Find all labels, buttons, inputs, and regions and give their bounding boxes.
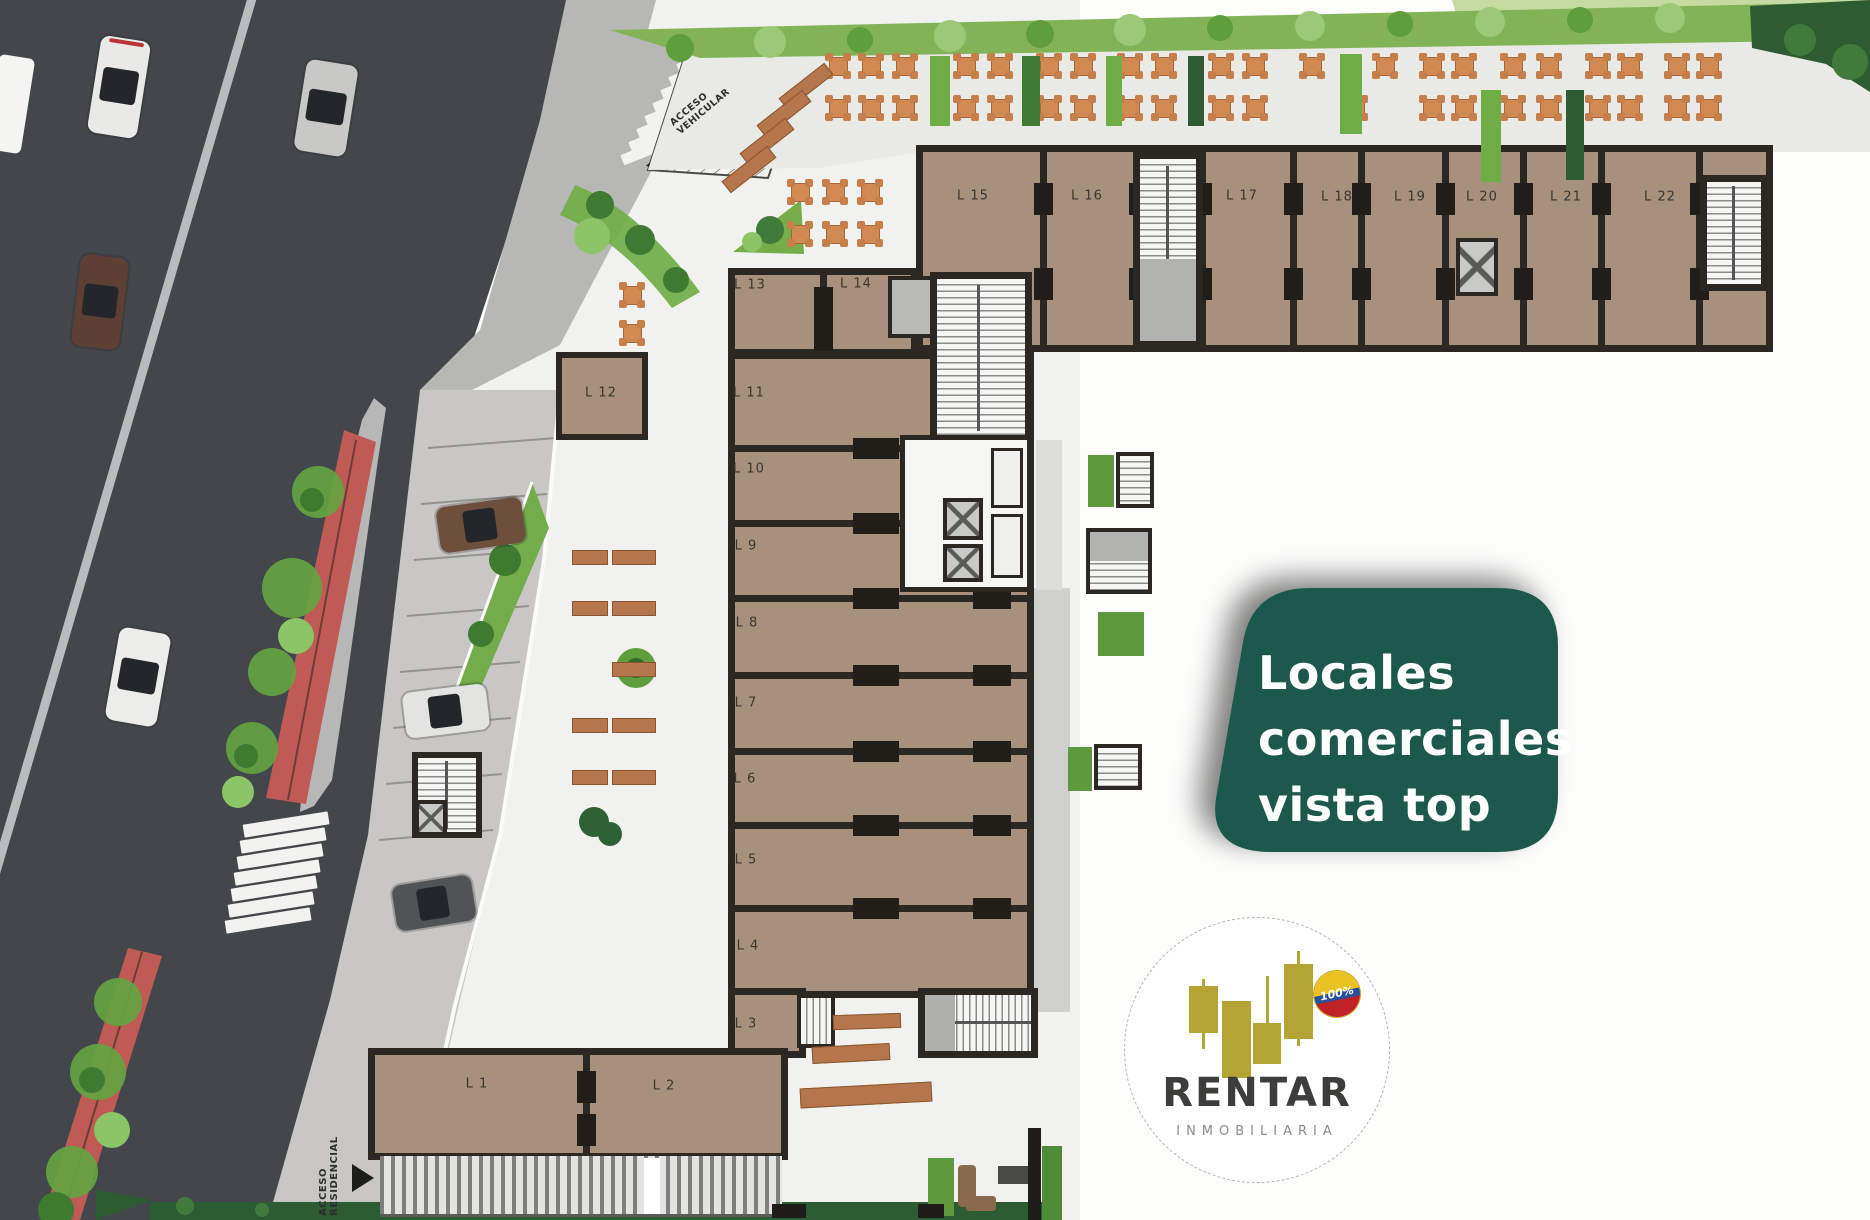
chair [1536, 53, 1544, 61]
logo-wick-icon [1202, 979, 1205, 986]
right-sidewalk-strip [1032, 588, 1070, 1012]
chair [910, 113, 918, 121]
wall [1040, 152, 1047, 345]
chair [822, 197, 830, 205]
garage-ramp [380, 1156, 782, 1217]
chair [1585, 95, 1593, 103]
chair [971, 113, 979, 121]
chair [1242, 71, 1250, 79]
cafe-table [1664, 53, 1690, 79]
stair-rail [955, 1021, 1031, 1024]
unit-label-l5: L 5 [735, 853, 758, 868]
terrace-planter [1481, 90, 1501, 182]
terrace-planter [1106, 56, 1122, 126]
chair [1088, 113, 1096, 121]
chair [1617, 113, 1625, 121]
chair [1635, 113, 1643, 121]
chair [857, 221, 865, 229]
chair [875, 239, 883, 247]
chair [858, 71, 866, 79]
badge-line-2: comerciales [1258, 706, 1573, 772]
chair [1151, 113, 1159, 121]
elevator-left [415, 800, 447, 836]
wall [1290, 152, 1297, 345]
residential-access-label: ACCESO RESIDENCIAL [318, 1121, 340, 1216]
bathroom [991, 448, 1023, 508]
chair [1682, 113, 1690, 121]
cafe-table [1696, 53, 1722, 79]
chair [1451, 53, 1459, 61]
cafe-table [1419, 95, 1445, 121]
unit-label-l6: L 6 [734, 772, 757, 787]
chair [1518, 71, 1526, 79]
cafe-table [1536, 95, 1562, 121]
chair [1451, 113, 1459, 121]
chair [987, 53, 995, 61]
chair [805, 179, 813, 187]
chair [1664, 95, 1672, 103]
chair [1554, 113, 1562, 121]
logo-subtitle-text: INMOBILIARIA [1125, 1124, 1389, 1139]
chair [1151, 71, 1159, 79]
chair [1005, 71, 1013, 79]
chair [1070, 113, 1078, 121]
chair [840, 179, 848, 187]
bathroom [991, 514, 1023, 578]
cafe-table [1242, 53, 1268, 79]
logo-bar-icon [1253, 1023, 1281, 1064]
chair [1242, 95, 1250, 103]
cafe-table [619, 320, 645, 346]
chair [1226, 71, 1234, 79]
planter-box [1042, 1146, 1062, 1220]
unit-label-l18: L 18 [1321, 190, 1353, 205]
unit-label-l8: L 8 [736, 616, 759, 631]
chair [1696, 53, 1704, 61]
unit-label-l12: L 12 [585, 386, 617, 401]
chair [822, 221, 830, 229]
cafe-table [1419, 53, 1445, 79]
chair [910, 53, 918, 61]
cafe-table [1208, 53, 1234, 79]
chair [1169, 113, 1177, 121]
chair [1696, 113, 1704, 121]
cafe-table [953, 53, 979, 79]
stair-rail [977, 285, 980, 430]
chair [1390, 53, 1398, 61]
chair [1518, 95, 1526, 103]
wall-stub [1028, 1128, 1041, 1220]
chair [1260, 113, 1268, 121]
chair [876, 53, 884, 61]
cafe-table [1585, 95, 1611, 121]
cafe-table [619, 282, 645, 308]
cafe-table [1451, 53, 1477, 79]
chair [1437, 113, 1445, 121]
chair [1299, 53, 1307, 61]
chair [1518, 53, 1526, 61]
chair [1603, 71, 1611, 79]
chair [858, 113, 866, 121]
unit-label-l21: L 21 [1550, 190, 1582, 205]
car-windshield [416, 885, 451, 921]
chair [892, 113, 900, 121]
wall-stub [918, 1204, 944, 1218]
chair [1714, 95, 1722, 103]
wall [1358, 152, 1365, 345]
bench [572, 718, 608, 733]
chair [971, 53, 979, 61]
chair [1135, 53, 1143, 61]
chair [1054, 95, 1062, 103]
unit-label-l2: L 2 [653, 1079, 676, 1094]
unit-label-l17: L 17 [1226, 189, 1258, 204]
chair [1451, 95, 1459, 103]
wall [1520, 152, 1527, 345]
wall [735, 822, 1027, 829]
chair [1135, 71, 1143, 79]
bench [572, 770, 608, 785]
chair [1088, 95, 1096, 103]
cafe-table [1536, 53, 1562, 79]
car-windshield [117, 657, 159, 695]
stairwell-top-right [1700, 175, 1768, 291]
logo-bar-icon [1222, 1001, 1251, 1078]
chair [1242, 53, 1250, 61]
unit-label-l7: L 7 [735, 696, 758, 711]
chair [1664, 71, 1672, 79]
bench [572, 601, 608, 616]
chair [1169, 71, 1177, 79]
elevator-core [900, 435, 1032, 592]
planter-box [1068, 747, 1092, 791]
chair [1437, 71, 1445, 79]
chair [1714, 53, 1722, 61]
chair [857, 179, 865, 187]
chair [875, 179, 883, 187]
chair [1682, 71, 1690, 79]
logo-wick-icon [1202, 1033, 1205, 1049]
chair [1088, 71, 1096, 79]
chair [637, 300, 645, 308]
chair [1696, 71, 1704, 79]
chair [1469, 113, 1477, 121]
chair [875, 221, 883, 229]
chair [971, 95, 979, 103]
chair [1372, 71, 1380, 79]
chair [822, 239, 830, 247]
bench [812, 1042, 891, 1063]
chair [619, 282, 627, 290]
chair [1714, 71, 1722, 79]
stair-landing [925, 995, 955, 1051]
chair [910, 71, 918, 79]
unit-label-l13: L 13 [734, 278, 766, 293]
chair [825, 113, 833, 121]
logo-wick-icon [1266, 976, 1269, 1023]
cafe-table [1451, 95, 1477, 121]
chair [1135, 113, 1143, 121]
unit-label-l16: L 16 [1071, 189, 1103, 204]
chair [1317, 53, 1325, 61]
cafe-table [822, 221, 848, 247]
chair [953, 113, 961, 121]
car-windshield [427, 694, 462, 729]
unit-label-l3: L 3 [735, 1017, 758, 1032]
unit-label-l11: L 11 [733, 386, 765, 401]
chair [1419, 71, 1427, 79]
stair-landing [1140, 259, 1196, 341]
building-top-wing [916, 145, 1773, 352]
chair [1260, 53, 1268, 61]
chair [1585, 71, 1593, 79]
chair [1554, 71, 1562, 79]
chair [787, 221, 795, 229]
cafe-table [987, 95, 1013, 121]
chair [987, 113, 995, 121]
floorplan-rendering: L 1 L 2 L 3 L 4 L 5 L 6 L 7 L 8 L 9 L 10… [0, 0, 1870, 1220]
chair [987, 71, 995, 79]
chair [1437, 95, 1445, 103]
chair [1536, 71, 1544, 79]
chair [1451, 71, 1459, 79]
chair [787, 197, 795, 205]
chair [1169, 95, 1177, 103]
chair [1226, 95, 1234, 103]
chair [857, 197, 865, 205]
chair [910, 95, 918, 103]
chair [822, 179, 830, 187]
chair [858, 95, 866, 103]
chair [1208, 95, 1216, 103]
chair [1226, 53, 1234, 61]
chair [1554, 53, 1562, 61]
chair [876, 95, 884, 103]
chair [1500, 113, 1508, 121]
unit-label-l1: L 1 [466, 1077, 489, 1092]
stair-landing [1090, 532, 1148, 561]
chair [1054, 53, 1062, 61]
chair [1500, 53, 1508, 61]
cafe-table [1242, 95, 1268, 121]
chair [1554, 95, 1562, 103]
bench [612, 662, 656, 677]
chair [1664, 113, 1672, 121]
cafe-table [857, 179, 883, 205]
chair [1603, 95, 1611, 103]
stairwell-corner [930, 272, 1032, 444]
wall [1598, 152, 1605, 345]
unit-label-l20: L 20 [1466, 190, 1498, 205]
cafe-table [1372, 53, 1398, 79]
chair [1664, 53, 1672, 61]
stairwell-l3 [797, 994, 835, 1048]
chair [1682, 53, 1690, 61]
chair [1005, 53, 1013, 61]
badge-line-1: Locales [1258, 640, 1573, 706]
badge-line-3: vista top [1258, 772, 1573, 838]
wall [583, 1055, 590, 1153]
unit-label-l4: L 4 [737, 939, 760, 954]
terrace-planter [1022, 56, 1040, 126]
wall [820, 275, 827, 349]
chair [1617, 53, 1625, 61]
chair [1070, 71, 1078, 79]
kiosk-box [998, 1166, 1028, 1184]
chair [619, 338, 627, 346]
wall [735, 672, 1027, 679]
chair [953, 95, 961, 103]
chair [1635, 53, 1643, 61]
chair [875, 197, 883, 205]
wall [735, 595, 1027, 602]
chair [787, 179, 795, 187]
chair [1390, 71, 1398, 79]
unit-label-l19: L 19 [1394, 190, 1426, 205]
cafe-table [1617, 95, 1643, 121]
cafe-table [822, 179, 848, 205]
chair [858, 53, 866, 61]
chair [1151, 95, 1159, 103]
chair [1437, 53, 1445, 61]
chair [1419, 113, 1427, 121]
chair [1536, 113, 1544, 121]
unit-label-l10: L 10 [733, 462, 765, 477]
chair [637, 282, 645, 290]
chair [1469, 71, 1477, 79]
chair [805, 221, 813, 229]
cafe-table [858, 53, 884, 79]
chair [619, 300, 627, 308]
cafe-table [953, 95, 979, 121]
unit-label-l15: L 15 [957, 189, 989, 204]
elevator-l20 [1456, 238, 1498, 296]
stair-island [1086, 528, 1152, 594]
chair [1054, 71, 1062, 79]
chair [1500, 95, 1508, 103]
chair [825, 95, 833, 103]
bench [833, 1012, 901, 1029]
bench [612, 550, 656, 565]
planter-box [1098, 612, 1144, 656]
stairwell-bottom [918, 988, 1038, 1058]
chair [1696, 95, 1704, 103]
unit-label-l9: L 9 [735, 539, 758, 554]
chair [892, 53, 900, 61]
chair [1005, 113, 1013, 121]
building-bottom-wing [368, 1048, 788, 1160]
car-windshield [99, 67, 140, 106]
car-windshield [81, 283, 119, 318]
chair [1419, 95, 1427, 103]
bench [612, 718, 656, 733]
cafe-table [987, 53, 1013, 79]
wall-stub [772, 1204, 806, 1218]
vestibule [888, 276, 936, 338]
chair [787, 239, 795, 247]
chair [1135, 95, 1143, 103]
logo-bar-icon [1284, 964, 1313, 1039]
logo-wick-icon [1297, 951, 1300, 964]
chair [1242, 113, 1250, 121]
cafe-table [825, 95, 851, 121]
chair [840, 197, 848, 205]
terrace-planter [1188, 56, 1204, 126]
chair [1617, 95, 1625, 103]
bench [612, 601, 656, 616]
logo-bar-icon [1189, 986, 1218, 1033]
cafe-table [1070, 53, 1096, 79]
terrace-planter [1340, 54, 1362, 134]
cafe-table [1664, 95, 1690, 121]
cafe-table [1070, 95, 1096, 121]
unit-label-l22: L 22 [1644, 190, 1676, 205]
chair [1208, 53, 1216, 61]
chair [637, 320, 645, 328]
chair [1070, 53, 1078, 61]
cafe-table [1500, 53, 1526, 79]
chair [825, 53, 833, 61]
chair [1317, 71, 1325, 79]
chair [1603, 113, 1611, 121]
chair [876, 113, 884, 121]
cafe-table [1696, 95, 1722, 121]
chair [1169, 53, 1177, 61]
stair-island [1094, 744, 1142, 790]
chair [876, 71, 884, 79]
car-windshield [305, 89, 347, 126]
chair [1151, 53, 1159, 61]
cafe-table [1299, 53, 1325, 79]
stairwell-top-center [1133, 152, 1203, 348]
chair [1585, 113, 1593, 121]
ramp-walk-gap [644, 1158, 660, 1214]
terrace-planter [1566, 90, 1584, 180]
chair [1635, 71, 1643, 79]
cafe-table [787, 179, 813, 205]
cafe-table [1208, 95, 1234, 121]
wood-sculpture [966, 1196, 996, 1211]
chair [953, 71, 961, 79]
chair [1226, 113, 1234, 121]
chair [843, 71, 851, 79]
wall [1442, 152, 1449, 345]
logo-wick-icon [1297, 1039, 1300, 1046]
chair [843, 113, 851, 121]
rentar-logo: 100% RENTAR INMOBILIARIA [1124, 917, 1390, 1183]
chair [1299, 71, 1307, 79]
chair [1070, 95, 1078, 103]
chair [1372, 53, 1380, 61]
cafe-table [858, 95, 884, 121]
chair [971, 71, 979, 79]
chair [805, 239, 813, 247]
chair [953, 53, 961, 61]
cafe-table [857, 221, 883, 247]
cafe-table [1585, 53, 1611, 79]
chair [1682, 95, 1690, 103]
chair [1088, 53, 1096, 61]
bench [612, 770, 656, 785]
chair [1260, 71, 1268, 79]
bench [572, 550, 608, 565]
cafe-table [1617, 53, 1643, 79]
quality-seal-icon: 100% [1310, 967, 1365, 1022]
chair [619, 320, 627, 328]
stair-rail [1732, 186, 1735, 280]
chair [892, 95, 900, 103]
logo-brand-text: RENTAR [1125, 1070, 1389, 1116]
